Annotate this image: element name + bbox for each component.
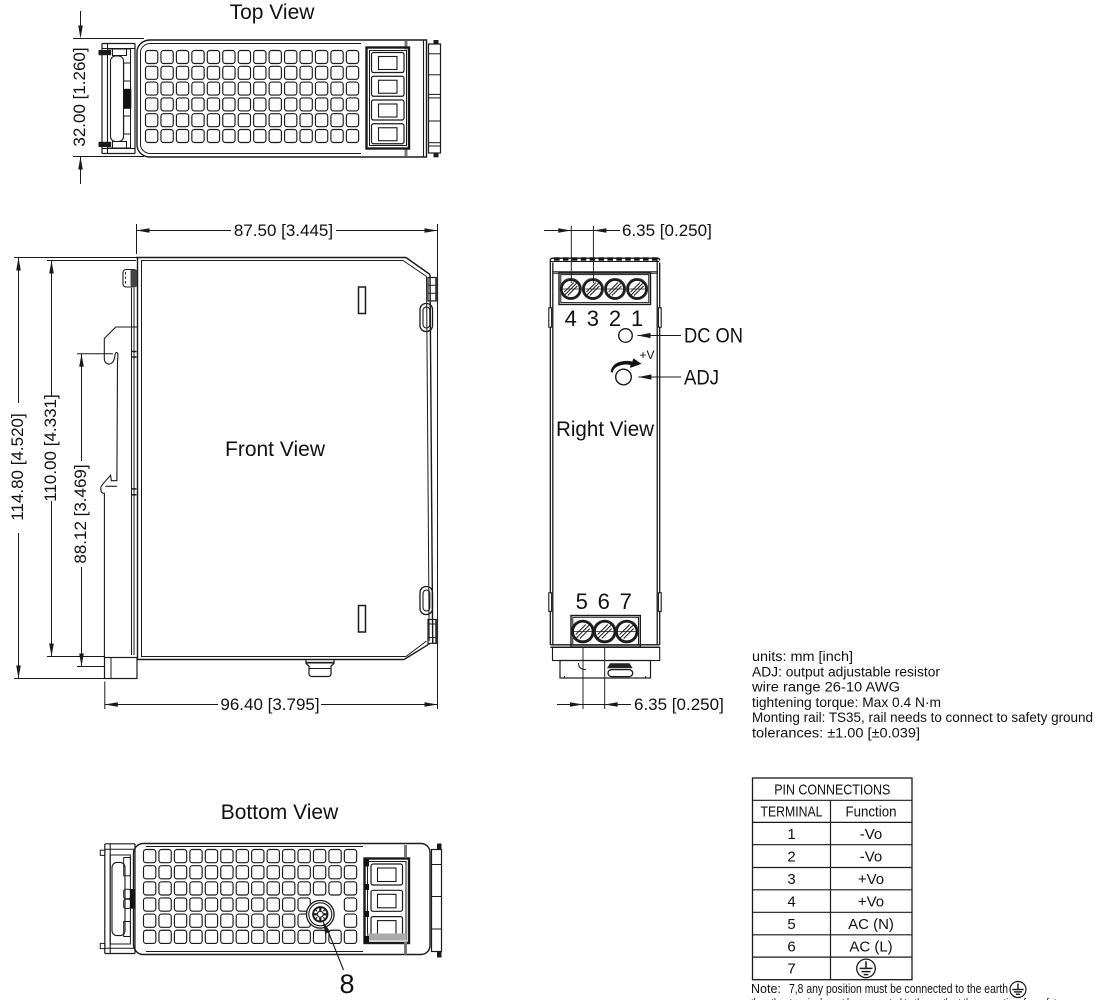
svg-text:Top View: Top View [230, 1, 316, 24]
svg-text:-Vo: -Vo [860, 826, 883, 843]
svg-text:+Vo: +Vo [858, 871, 884, 888]
svg-text:AC (N): AC (N) [848, 916, 894, 933]
svg-text:6: 6 [598, 589, 610, 614]
svg-text:4: 4 [565, 306, 577, 331]
svg-text:7: 7 [620, 589, 632, 614]
svg-text:+Vo: +Vo [858, 893, 884, 910]
svg-text:4: 4 [787, 893, 795, 910]
svg-text:5: 5 [576, 589, 588, 614]
svg-text:Bottom View: Bottom View [221, 801, 339, 824]
svg-text:Front View: Front View [225, 438, 326, 461]
svg-text:tolerances: ±1.00 [±0.039]: tolerances: ±1.00 [±0.039] [752, 726, 920, 741]
svg-text:+V: +V [640, 348, 655, 362]
svg-text:5: 5 [787, 916, 795, 933]
svg-text:Note:: Note: [751, 982, 781, 996]
svg-text:6.35 [0.250]: 6.35 [0.250] [622, 221, 712, 240]
svg-text:114.80 [4.520]: 114.80 [4.520] [8, 413, 27, 520]
svg-text:8: 8 [339, 969, 354, 999]
svg-text:7: 7 [787, 961, 795, 978]
svg-text:87.50 [3.445]: 87.50 [3.445] [234, 221, 333, 240]
svg-text:DC ON: DC ON [684, 325, 743, 348]
svg-text:2: 2 [787, 848, 795, 865]
svg-text:7,8 any position must be conne: 7,8 any position must be connected to th… [789, 982, 1008, 996]
svg-text:TERMINAL: TERMINAL [761, 804, 823, 821]
svg-text:3: 3 [587, 306, 599, 331]
svg-text:tightening torque: Max 0.4 N·m: tightening torque: Max 0.4 N·m [752, 695, 941, 710]
svg-text:ADJ: ADJ [684, 367, 719, 390]
svg-text:wire range 26-10 AWG: wire range 26-10 AWG [751, 680, 900, 695]
svg-text:ADJ: output adjustable resisto: ADJ: output adjustable resistor [752, 664, 941, 679]
svg-text:AC (L): AC (L) [849, 938, 892, 955]
svg-text:1: 1 [631, 306, 643, 331]
svg-text:Monting rail: TS35, rail needs: Monting rail: TS35, rail needs to connec… [752, 710, 1093, 725]
svg-text:88.12 [3.469]: 88.12 [3.469] [71, 464, 90, 563]
svg-text:units: mm [inch]: units: mm [inch] [752, 649, 853, 664]
svg-text:110.00 [4.331]: 110.00 [4.331] [41, 394, 60, 501]
svg-text:1: 1 [787, 826, 795, 843]
svg-text:Function: Function [846, 804, 897, 821]
svg-text:-Vo: -Vo [860, 848, 883, 865]
svg-text:Right View: Right View [556, 418, 655, 441]
svg-text:96.40 [3.795]: 96.40 [3.795] [220, 695, 319, 714]
svg-text:3: 3 [787, 871, 795, 888]
svg-text:6: 6 [787, 938, 795, 955]
svg-text:6.35 [0.250]: 6.35 [0.250] [634, 695, 724, 714]
svg-text:2: 2 [609, 306, 621, 331]
svg-text:PIN CONNECTIONS: PIN CONNECTIONS [774, 782, 890, 799]
svg-text:the other terminal must be con: the other terminal must be connected to … [751, 997, 1062, 1000]
svg-text:32.00 [1.260]: 32.00 [1.260] [70, 47, 89, 146]
